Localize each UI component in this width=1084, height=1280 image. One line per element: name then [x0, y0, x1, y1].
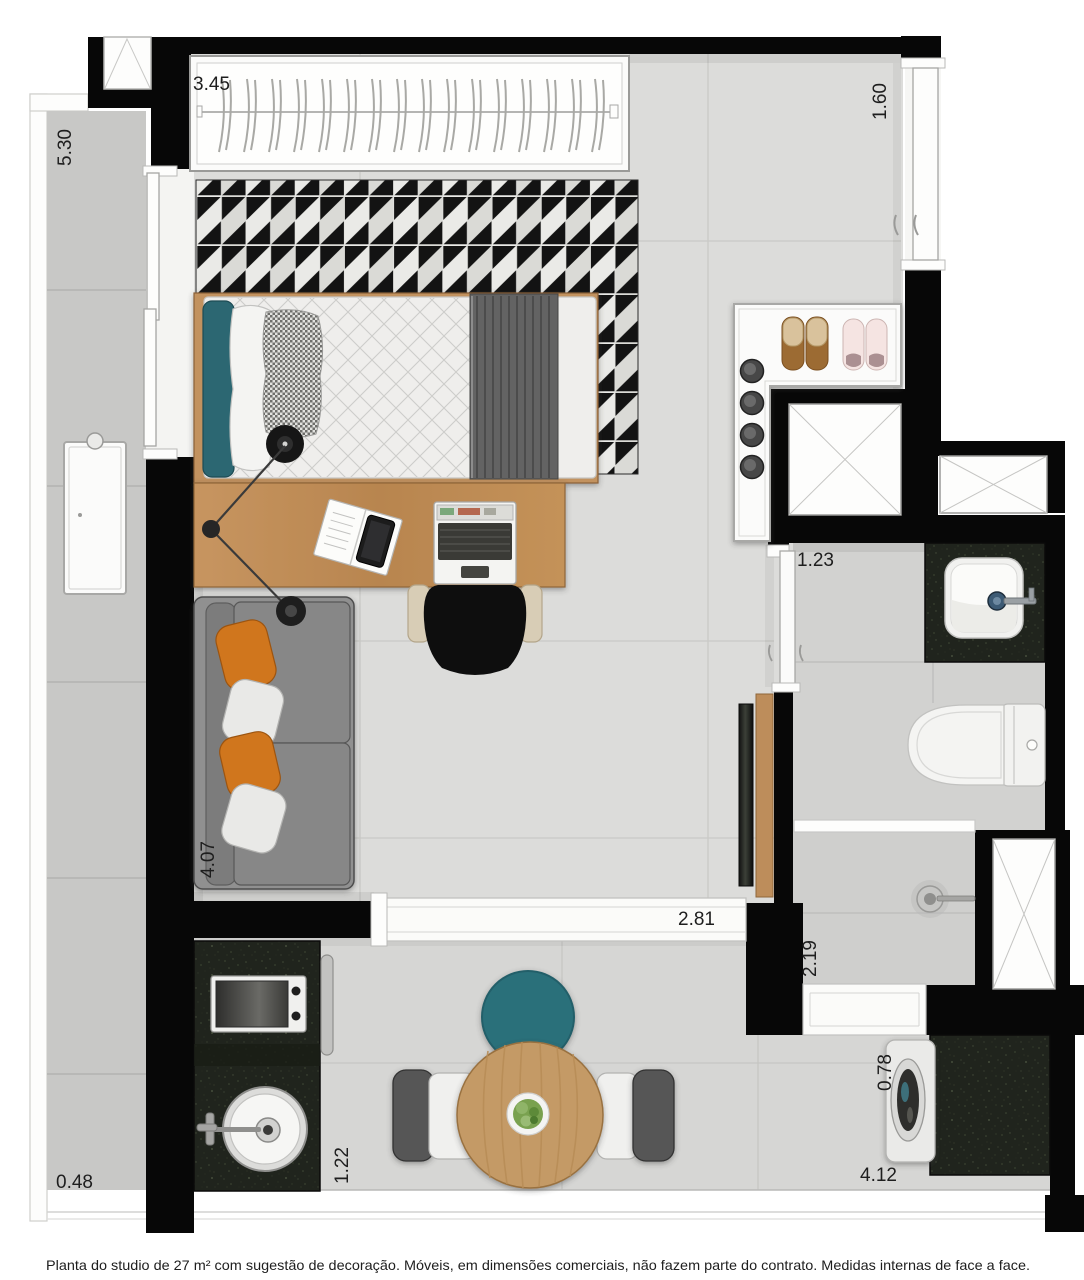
svg-text:1.23: 1.23 — [797, 550, 834, 571]
svg-text:1.60: 1.60 — [870, 83, 891, 120]
svg-text:5.30: 5.30 — [55, 129, 76, 166]
svg-text:0.78: 0.78 — [875, 1054, 896, 1091]
svg-text:0.48: 0.48 — [56, 1172, 93, 1193]
svg-text:2.19: 2.19 — [800, 940, 821, 977]
svg-text:2.81: 2.81 — [678, 909, 715, 930]
svg-text:1.22: 1.22 — [332, 1147, 353, 1184]
svg-text:3.45: 3.45 — [193, 74, 230, 95]
svg-text:4.12: 4.12 — [860, 1165, 897, 1186]
svg-text:Planta do studio de 27 m² com: Planta do studio de 27 m² com sugestão d… — [46, 1257, 1030, 1273]
svg-text:4.07: 4.07 — [198, 841, 219, 878]
